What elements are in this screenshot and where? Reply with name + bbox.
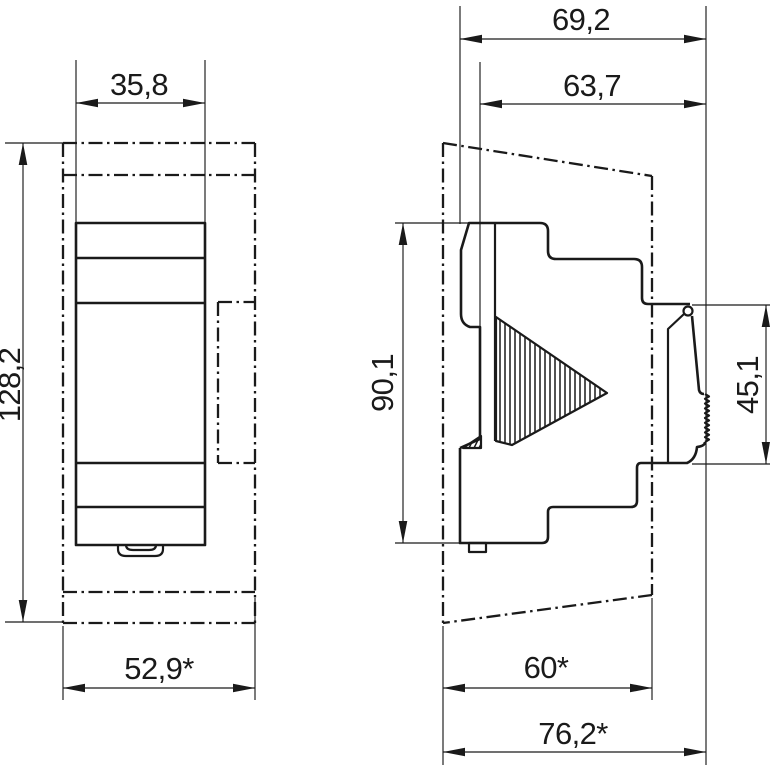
technical-drawing-canvas: 35,8 128,2 52,9* 69,2 bbox=[0, 0, 770, 770]
drawing-svg: 35,8 128,2 52,9* 69,2 bbox=[0, 0, 770, 770]
dim-label-side-total-depth: 76,2* bbox=[538, 716, 608, 751]
dim-label-front-width: 35,8 bbox=[110, 67, 168, 102]
dim-label-side-depth-front: 63,7 bbox=[563, 68, 621, 103]
dim-label-front-cutout-width: 52,9* bbox=[124, 651, 194, 686]
dim-label-front-height: 128,2 bbox=[0, 348, 27, 423]
dim-label-side-depth-total: 69,2 bbox=[552, 2, 610, 37]
dim-label-side-rear-height: 45,1 bbox=[730, 356, 765, 414]
dim-label-side-cutout-depth: 60* bbox=[524, 650, 569, 685]
dim-label-side-height: 90,1 bbox=[365, 354, 400, 412]
